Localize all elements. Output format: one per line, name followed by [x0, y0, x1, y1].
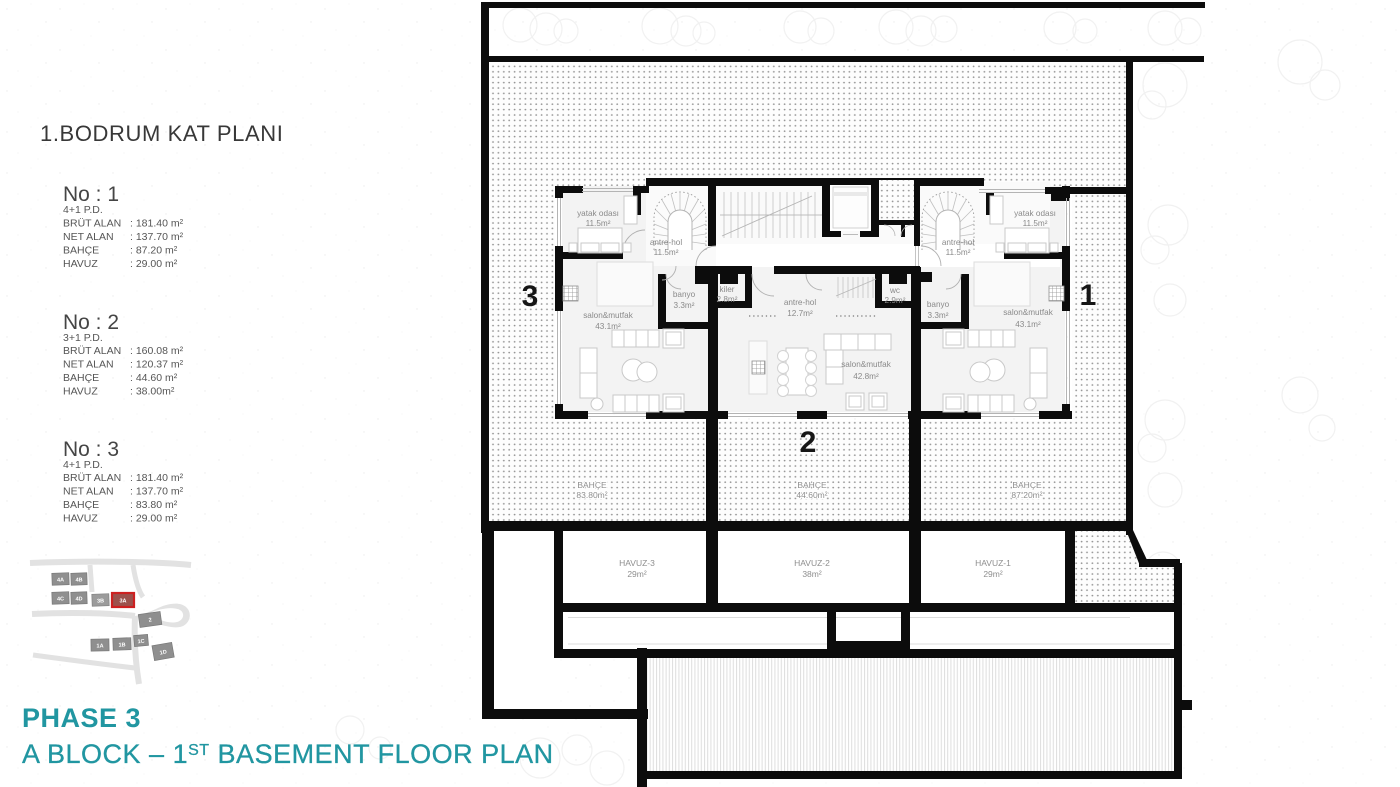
svg-text:BAHÇE: BAHÇE: [797, 480, 827, 490]
svg-text:yatak odası: yatak odası: [1014, 209, 1056, 218]
svg-text:salon&mutfak: salon&mutfak: [583, 311, 634, 320]
svg-text:antre-hol: antre-hol: [650, 238, 682, 247]
svg-text:1: 1: [1080, 279, 1097, 312]
svg-text:11.5m²: 11.5m²: [654, 248, 679, 257]
svg-text:: 38.00m²: : 38.00m²: [130, 386, 175, 398]
svg-text:2: 2: [800, 426, 817, 459]
svg-text:4C: 4C: [57, 596, 64, 602]
svg-text:3B: 3B: [97, 598, 104, 604]
svg-text:HAVUZ-2: HAVUZ-2: [794, 558, 830, 568]
svg-text:: 120.37 m²: : 120.37 m²: [130, 359, 184, 371]
svg-text:No : 3: No : 3: [63, 438, 119, 461]
svg-text:NET ALAN: NET ALAN: [63, 486, 114, 498]
svg-text:1C: 1C: [137, 639, 145, 646]
svg-text:BAHÇE: BAHÇE: [1012, 480, 1042, 490]
svg-text:BAHÇE: BAHÇE: [577, 480, 607, 490]
svg-text:: 29.00 m²: : 29.00 m²: [130, 513, 178, 525]
svg-text:87.20m²: 87.20m²: [1011, 490, 1042, 500]
svg-text:HAVUZ-1: HAVUZ-1: [975, 558, 1011, 568]
svg-text:44.60m²: 44.60m²: [796, 490, 827, 500]
svg-text:11.5m²: 11.5m²: [946, 248, 971, 257]
svg-text:4+1 P.D.: 4+1 P.D.: [63, 204, 103, 216]
svg-text:2.8m²: 2.8m²: [717, 295, 738, 304]
svg-text:PHASE 3: PHASE 3: [22, 703, 141, 733]
svg-text:4A: 4A: [57, 577, 64, 583]
svg-text:: 160.08 m²: : 160.08 m²: [130, 345, 184, 357]
svg-text:: 137.70 m²: : 137.70 m²: [130, 231, 184, 243]
svg-text:BAHÇE: BAHÇE: [63, 372, 99, 384]
svg-text:11.5m²: 11.5m²: [1023, 219, 1048, 228]
svg-text:83.80m²: 83.80m²: [576, 490, 607, 500]
svg-text:BAHÇE: BAHÇE: [63, 245, 99, 257]
svg-text:: 181.40 m²: : 181.40 m²: [130, 218, 184, 230]
svg-text:: 83.80 m²: : 83.80 m²: [130, 499, 178, 511]
svg-text:1.BODRUM KAT PLANI: 1.BODRUM KAT PLANI: [40, 121, 284, 146]
svg-text:antre-hol: antre-hol: [784, 298, 816, 307]
svg-text:wc: wc: [889, 286, 900, 295]
svg-text:3: 3: [522, 280, 539, 313]
svg-text:salon&mutfak: salon&mutfak: [1003, 308, 1054, 317]
svg-text:1B: 1B: [118, 642, 125, 648]
svg-text:BAHÇE: BAHÇE: [63, 499, 99, 511]
svg-text:No : 1: No : 1: [63, 183, 119, 206]
svg-text:: 29.00 m²: : 29.00 m²: [130, 258, 178, 270]
svg-text:2.9m²: 2.9m²: [885, 296, 906, 305]
svg-text:HAVUZ: HAVUZ: [63, 386, 98, 398]
svg-text:29m²: 29m²: [983, 569, 1003, 579]
svg-text:antre-hol: antre-hol: [942, 238, 974, 247]
svg-text:42.8m²: 42.8m²: [853, 372, 879, 381]
svg-text:11.5m²: 11.5m²: [586, 219, 611, 228]
svg-text:HAVUZ: HAVUZ: [63, 258, 98, 270]
svg-text:No : 2: No : 2: [63, 311, 119, 334]
svg-text:salon&mutfak: salon&mutfak: [841, 360, 892, 369]
svg-text:1D: 1D: [159, 649, 167, 656]
svg-text:: 181.40 m²: : 181.40 m²: [130, 472, 184, 484]
svg-text:HAVUZ-3: HAVUZ-3: [619, 558, 655, 568]
svg-text:3A: 3A: [119, 599, 126, 605]
svg-text:BRÜT ALAN: BRÜT ALAN: [63, 472, 121, 484]
svg-text:BRÜT ALAN: BRÜT ALAN: [63, 345, 121, 357]
svg-text:29m²: 29m²: [627, 569, 647, 579]
svg-text:3+1 P.D.: 3+1 P.D.: [63, 332, 103, 344]
svg-text:43.1m²: 43.1m²: [1015, 320, 1041, 329]
svg-text:: 44.60 m²: : 44.60 m²: [130, 372, 178, 384]
svg-text:38m²: 38m²: [802, 569, 822, 579]
svg-text:NET ALAN: NET ALAN: [63, 359, 114, 371]
svg-text:kiler: kiler: [719, 285, 734, 294]
svg-text:: 87.20 m²: : 87.20 m²: [130, 245, 178, 257]
svg-text:: 137.70 m²: : 137.70 m²: [130, 486, 184, 498]
svg-text:A BLOCK – 1ST BASEMENT FLOOR P: A BLOCK – 1ST BASEMENT FLOOR PLAN: [22, 739, 554, 769]
svg-text:yatak odası: yatak odası: [577, 209, 619, 218]
svg-text:4B: 4B: [75, 577, 82, 583]
svg-text:3.3m²: 3.3m²: [928, 311, 949, 320]
svg-text:12.7m²: 12.7m²: [787, 309, 813, 318]
svg-text:1A: 1A: [96, 643, 103, 649]
svg-text:HAVUZ: HAVUZ: [63, 513, 98, 525]
svg-text:4+1 P.D.: 4+1 P.D.: [63, 459, 103, 471]
svg-text:BRÜT ALAN: BRÜT ALAN: [63, 218, 121, 230]
svg-text:43.1m²: 43.1m²: [595, 322, 621, 331]
svg-text:banyo: banyo: [927, 300, 950, 309]
svg-text:NET ALAN: NET ALAN: [63, 231, 114, 243]
svg-text:banyo: banyo: [673, 290, 696, 299]
svg-text:3.3m²: 3.3m²: [674, 301, 695, 310]
svg-text:4D: 4D: [75, 596, 82, 602]
